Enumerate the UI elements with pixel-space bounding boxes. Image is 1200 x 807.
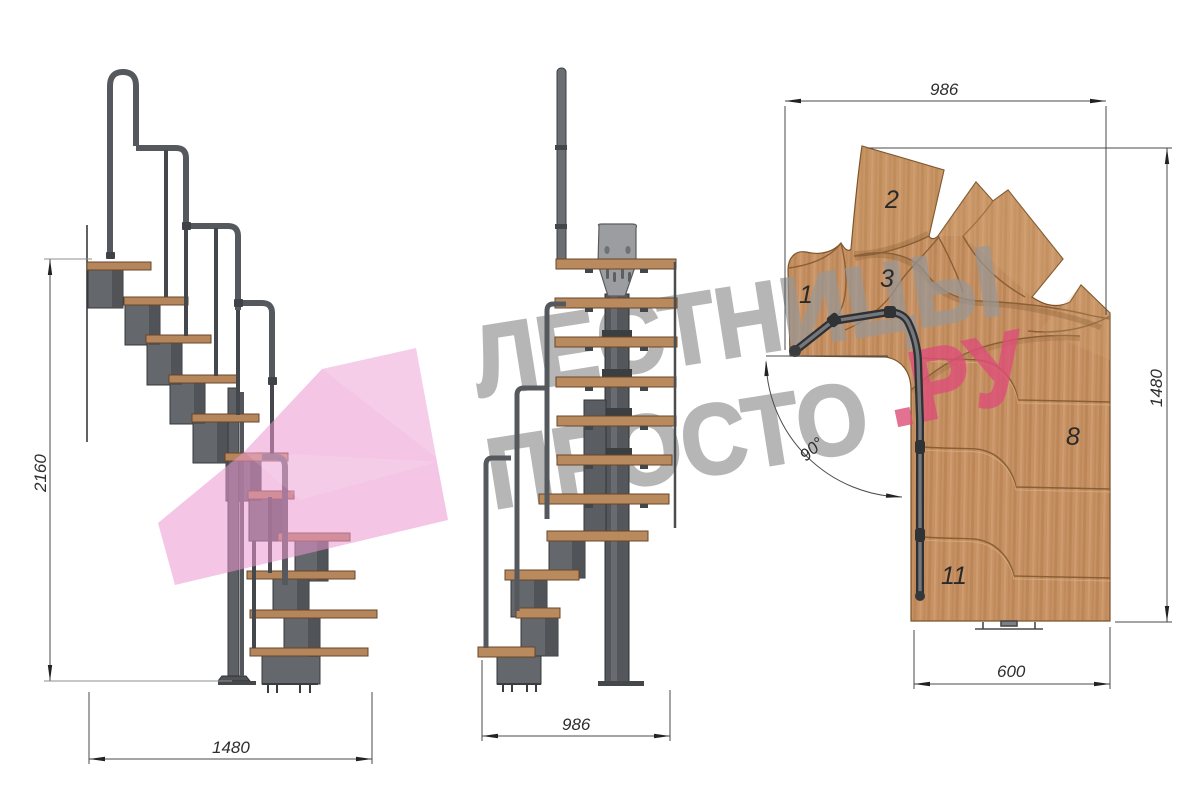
svg-text:1: 1 (799, 281, 813, 309)
svg-text:986: 986 (930, 80, 959, 99)
svg-text:986: 986 (562, 715, 591, 734)
svg-text:2: 2 (884, 186, 899, 214)
svg-text:600: 600 (997, 662, 1026, 681)
svg-text:8: 8 (1066, 423, 1080, 451)
svg-text:1480: 1480 (1147, 369, 1166, 407)
svg-text:11: 11 (941, 562, 967, 590)
svg-text:3: 3 (880, 265, 894, 293)
svg-text:2160: 2160 (31, 454, 50, 493)
svg-text:1480: 1480 (212, 738, 250, 757)
